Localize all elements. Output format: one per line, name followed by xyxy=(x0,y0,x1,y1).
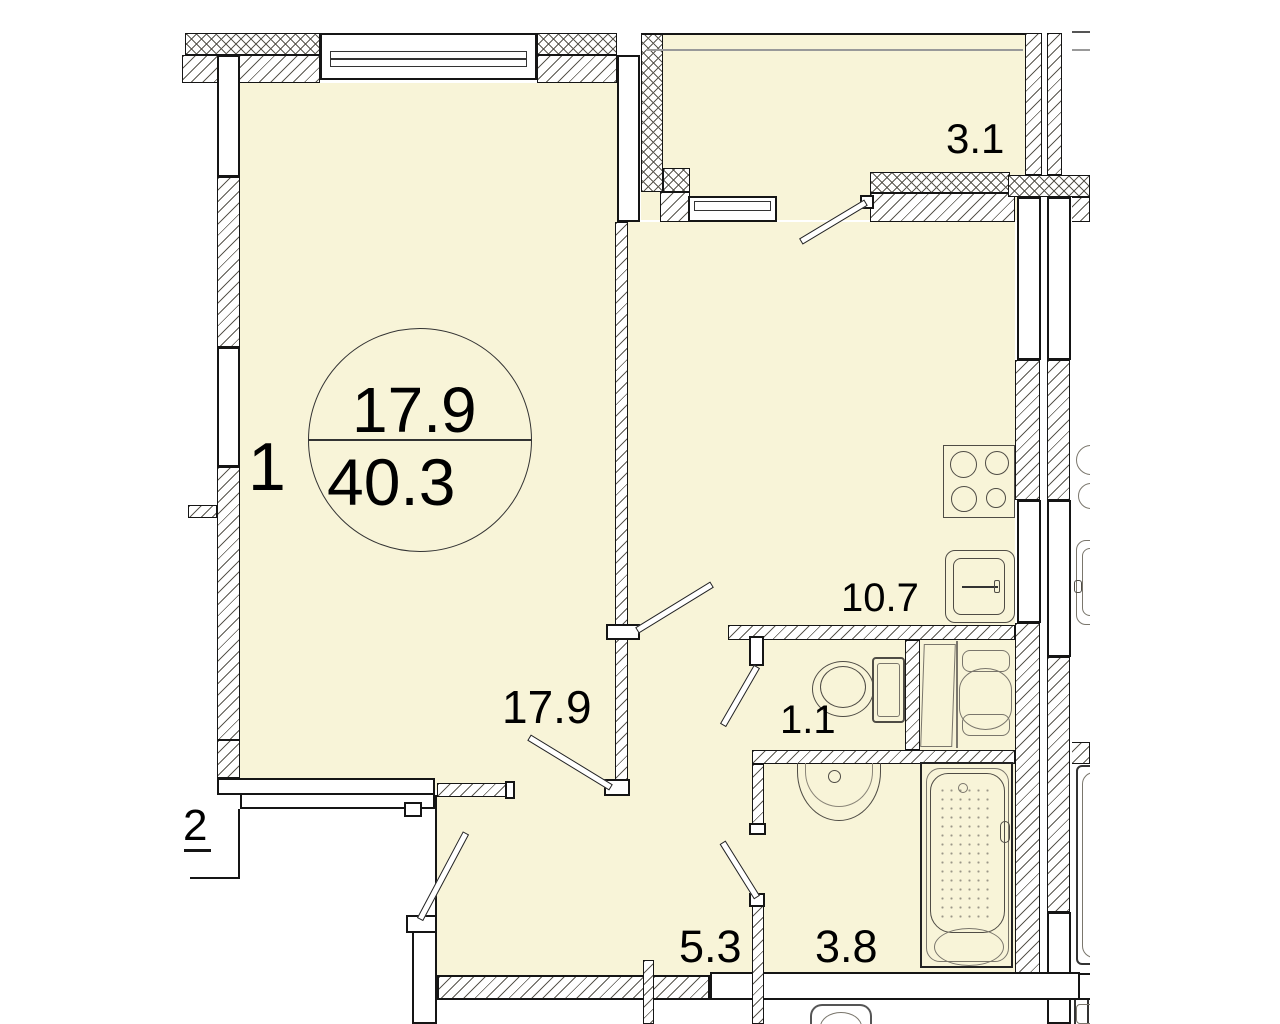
living-room-window-left-2 xyxy=(217,347,240,467)
kitchen-window-right-3a xyxy=(1017,500,1041,623)
kitchen-window-frame xyxy=(694,201,771,211)
kitchen-window-right-1a xyxy=(1017,197,1041,360)
wall-wc-duct xyxy=(905,640,920,750)
balcony-railing-line xyxy=(646,49,1023,51)
kitchen-sink-symbol xyxy=(945,550,1015,623)
wall-left-stub xyxy=(188,505,217,518)
toilet-symbol xyxy=(872,657,905,723)
wall-top-insulation-right xyxy=(537,33,617,55)
wall-left-2 xyxy=(217,467,240,740)
balcony-partition-right-top xyxy=(870,172,1010,193)
wall-below-stub xyxy=(643,960,654,1024)
floor-plan: 1 17.9 40.3 17.9 10.7 5.3 3.8 1.1 3.1 2 xyxy=(0,0,1280,1024)
partition-living-kitchen xyxy=(615,222,628,790)
wall-hall-left xyxy=(412,930,437,1024)
wall-top-right xyxy=(537,55,617,83)
balcony-partition-left xyxy=(660,192,690,222)
adjacent-unit-label: 2 xyxy=(183,804,207,848)
balcony-front-line xyxy=(641,33,1025,35)
unit-rooms-label: 1 xyxy=(248,433,286,501)
wall-left-3 xyxy=(217,740,240,778)
washbasin-faucet xyxy=(828,770,841,783)
balcony-area-label: 3.1 xyxy=(946,118,1004,160)
neighbor-stove-symbol xyxy=(1076,445,1090,475)
wall-top-left xyxy=(182,55,320,83)
balcony-partition-right xyxy=(870,193,1015,222)
niche-divider-line xyxy=(956,641,958,748)
wc-area-label: 1.1 xyxy=(780,700,836,740)
hallway xyxy=(437,783,628,975)
balcony-wall-right-a xyxy=(1025,33,1042,175)
wall-top-insulation-left xyxy=(185,33,320,55)
stove-symbol xyxy=(943,445,1015,518)
wc-door-stub xyxy=(749,636,764,666)
unit2-wall-line-v xyxy=(238,809,240,879)
hallway-area-label: 5.3 xyxy=(679,924,742,969)
wall-right-4b xyxy=(1047,657,1070,912)
wall-hall-bath-partition xyxy=(752,903,764,1024)
bathtub-symbol xyxy=(920,762,1013,968)
wall-right-2b xyxy=(1047,360,1070,500)
balcony-wall-right-b xyxy=(1047,33,1062,175)
hall-opening-edge xyxy=(435,795,437,918)
wall-bath-cap xyxy=(749,823,766,835)
wall-right-2a xyxy=(1015,360,1040,500)
wall-bath-left-top xyxy=(752,764,764,828)
wall-wc-top xyxy=(728,625,1015,640)
neighbor-unit-strip xyxy=(1072,0,1090,1024)
bathroom-area-label: 3.8 xyxy=(815,924,878,969)
living-area-stamp: 17.9 xyxy=(352,378,477,442)
living-room-window-left-1 xyxy=(217,55,240,177)
wall-bottom xyxy=(437,975,710,1000)
entry-opening xyxy=(710,972,1080,1000)
neighbor-window-3b xyxy=(1047,500,1071,657)
duct-panel xyxy=(920,644,956,747)
kitchen-area-label: 10.7 xyxy=(841,578,919,618)
pier-living-balcony xyxy=(617,55,640,222)
window-frame xyxy=(330,51,527,67)
balcony-wall-left xyxy=(641,33,663,192)
living-room-area-label: 17.9 xyxy=(502,684,592,730)
adjacent-unit-underline xyxy=(184,849,211,852)
hall-opening-stub xyxy=(404,802,422,817)
neighbor-window-1b xyxy=(1047,197,1071,360)
wall-hall-stub-cap xyxy=(505,781,515,799)
unit2-wall-line-h xyxy=(190,877,240,879)
wall-left-1 xyxy=(217,177,240,347)
balcony-partition-left-top xyxy=(663,168,690,192)
wall-right-4a xyxy=(1015,623,1040,978)
neighbor-below-washing-machine xyxy=(810,1004,872,1024)
wall-hall-top-stub xyxy=(437,783,513,797)
total-area-stamp: 40.3 xyxy=(327,449,455,515)
wall-right-5b xyxy=(1047,912,1071,1024)
